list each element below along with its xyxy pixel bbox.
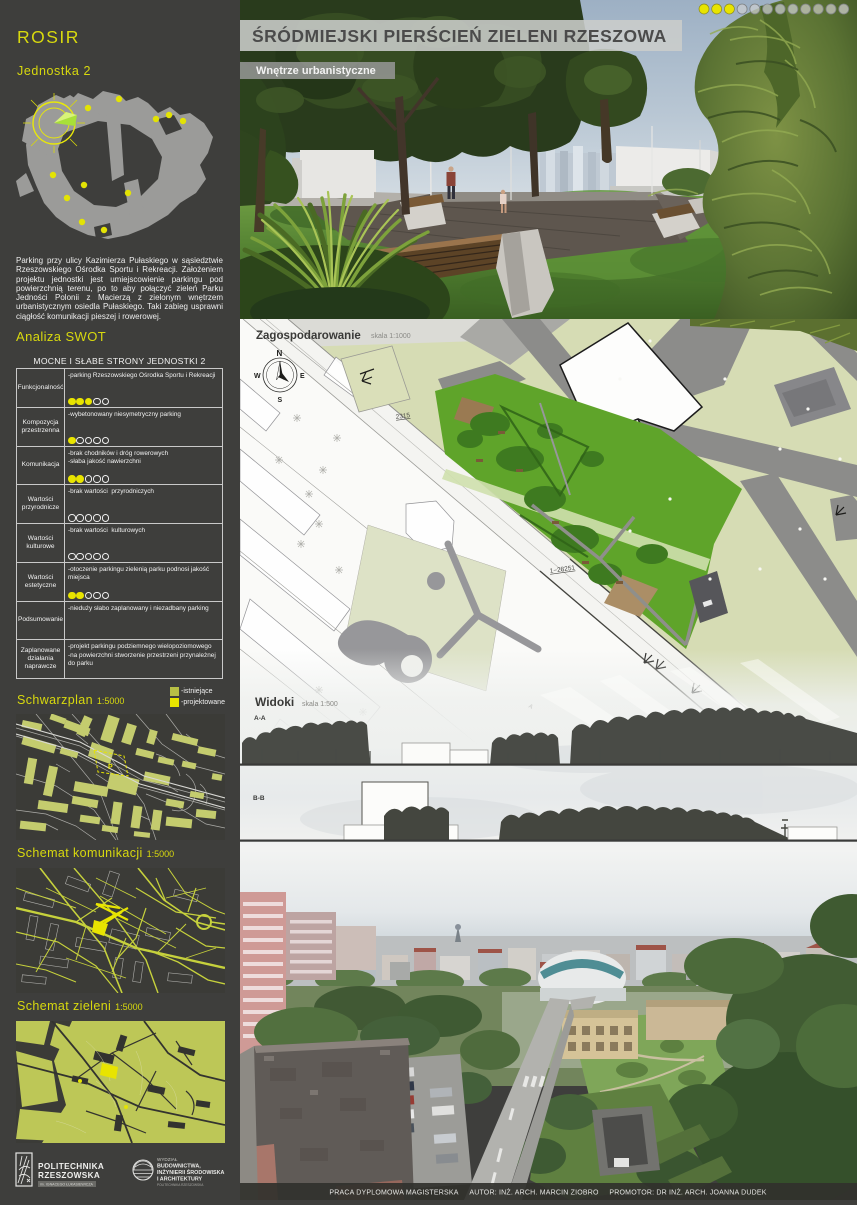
svg-text:P: P	[108, 764, 113, 771]
svg-text:B-B: B-B	[253, 795, 265, 802]
svg-text:A-A: A-A	[254, 715, 266, 722]
svg-text:Widoki: Widoki	[255, 695, 294, 709]
svg-text:POLITECHNIKA: POLITECHNIKA	[38, 1162, 104, 1171]
svg-text:skala 1:500: skala 1:500	[302, 701, 338, 708]
svg-text:Zagospodarowanie: Zagospodarowanie	[256, 330, 361, 342]
svg-text:S: S	[278, 397, 283, 404]
svg-text:skala 1:1000: skala 1:1000	[371, 333, 411, 340]
svg-text:PRACA DYPLOMOWA MAGISTERSKA: PRACA DYPLOMOWA MAGISTERSKA AUTOR: INŻ. …	[329, 1188, 766, 1197]
svg-text:N: N	[277, 349, 283, 358]
svg-text:WYDZIAŁ: WYDZIAŁ	[157, 1157, 178, 1162]
svg-text:E: E	[300, 373, 305, 380]
svg-text:I ARCHITEKTURY: I ARCHITEKTURY	[157, 1177, 203, 1183]
svg-text:BUDOWNICTWA,: BUDOWNICTWA,	[157, 1164, 201, 1170]
svg-text:im. IGNACEGO ŁUKASIEWICZA: im. IGNACEGO ŁUKASIEWICZA	[40, 1183, 94, 1187]
svg-text:INŻYNIERII ŚRODOWISKA: INŻYNIERII ŚRODOWISKA	[157, 1169, 224, 1176]
svg-text:POLITECHNIKA RZESZOWSKA: POLITECHNIKA RZESZOWSKA	[157, 1183, 204, 1187]
svg-text:RZESZOWSKA: RZESZOWSKA	[38, 1171, 100, 1180]
svg-text:W: W	[254, 373, 261, 380]
